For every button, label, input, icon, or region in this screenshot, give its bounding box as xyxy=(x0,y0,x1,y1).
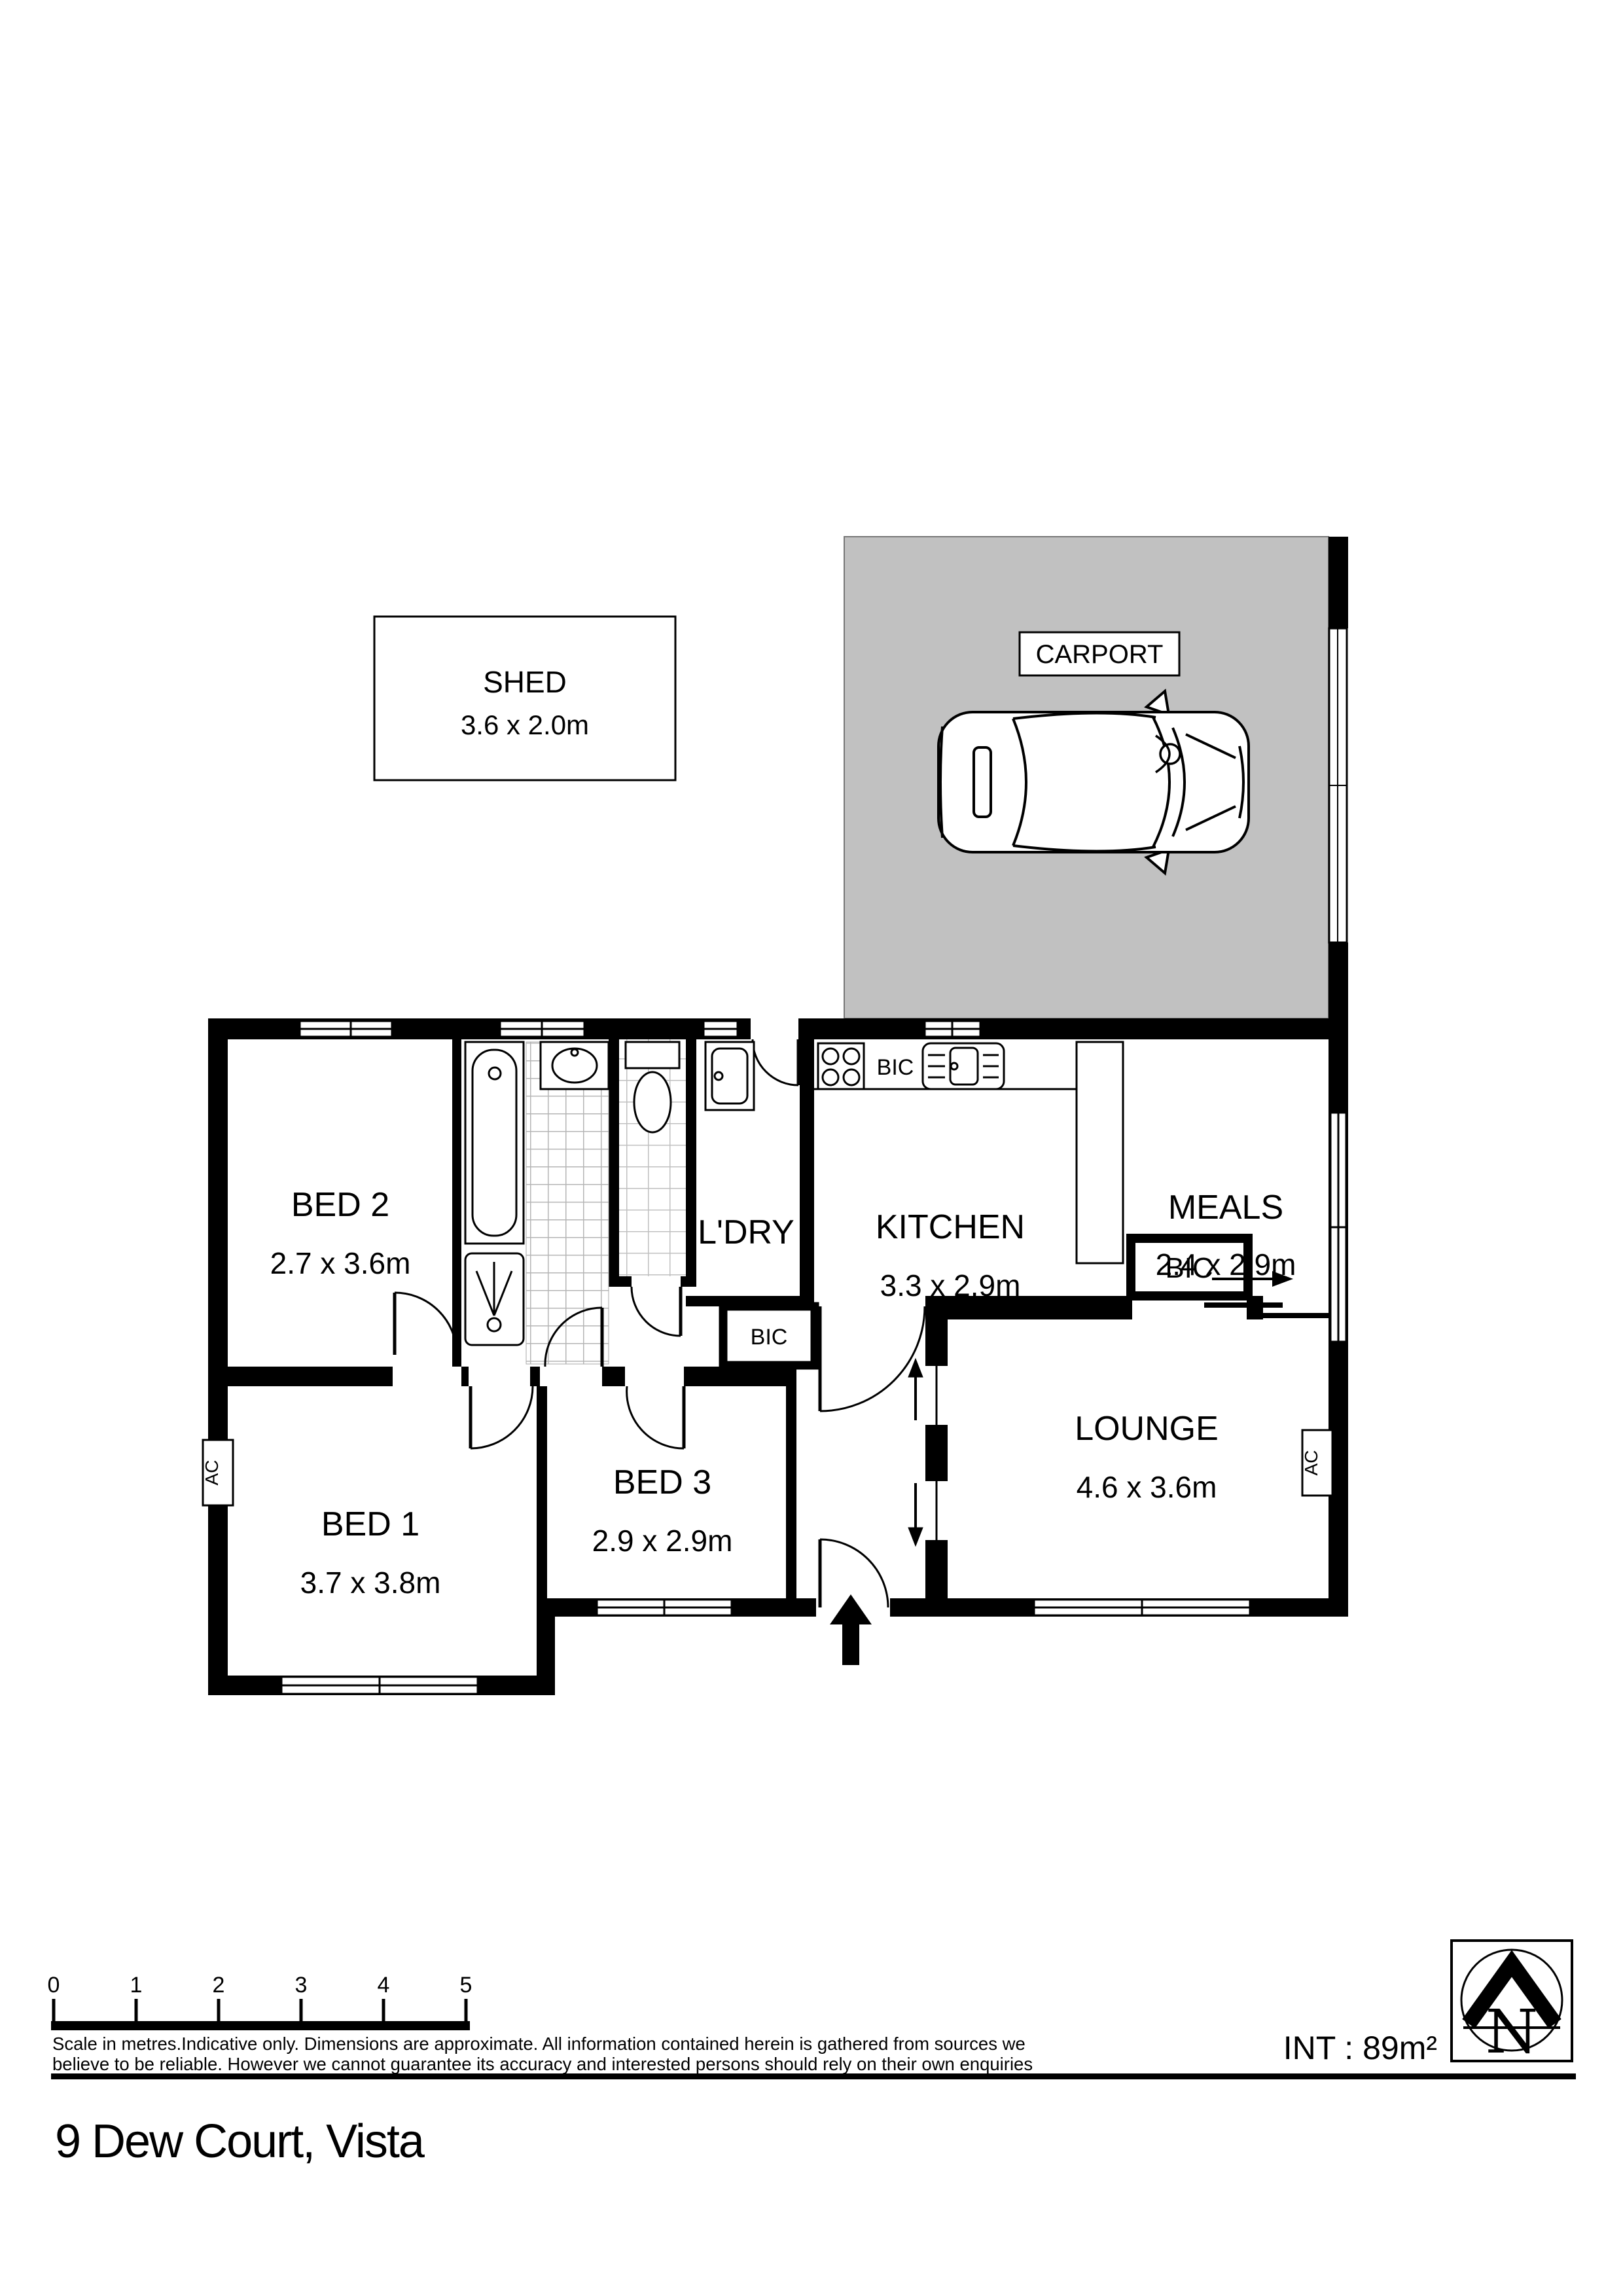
scale-tick-2: 2 xyxy=(213,1973,225,1998)
meals-window xyxy=(1330,1113,1346,1342)
bed1-window xyxy=(281,1677,478,1694)
scale-tick-0: 0 xyxy=(48,1973,60,1998)
shed-label: SHED xyxy=(483,665,567,699)
bic-kitchen-label: BIC xyxy=(877,1055,914,1080)
bathtub-icon xyxy=(465,1042,524,1244)
bathroom-tiles xyxy=(526,1042,609,1364)
separator-line xyxy=(51,2073,1576,2079)
carport: CARPORT xyxy=(844,537,1348,1021)
carport-label: CARPORT xyxy=(1036,640,1164,669)
bed3-window xyxy=(597,1600,732,1615)
disclaimer-line1: Scale in metres.Indicative only. Dimensi… xyxy=(52,2034,1026,2054)
ac-bed1-label: AC xyxy=(202,1460,222,1486)
bed3-label: BED 3 xyxy=(613,1463,711,1501)
bed2-door xyxy=(395,1293,457,1355)
ac-lounge-label: AC xyxy=(1301,1450,1321,1476)
carport-wall-upper xyxy=(1329,537,1348,628)
shed-dims: 3.6 x 2.0m xyxy=(461,709,589,740)
bic-hall: BIC xyxy=(723,1306,815,1365)
lounge-label: LOUNGE xyxy=(1075,1410,1219,1448)
floor-plan-svg: SHED 3.6 x 2.0m CARPORT xyxy=(0,0,1623,2296)
floorplan-page: SHED 3.6 x 2.0m CARPORT xyxy=(0,0,1623,2296)
counter-return xyxy=(1077,1042,1123,1263)
page-title: 9 Dew Court, Vista xyxy=(55,2115,425,2168)
ac-bed1: AC xyxy=(202,1440,233,1505)
bed2-label: BED 2 xyxy=(291,1186,389,1224)
meals-label: MEALS xyxy=(1168,1189,1283,1227)
wc-door xyxy=(632,1287,681,1336)
kitchen-dims: 3.3 x 2.9m xyxy=(880,1268,1021,1302)
bed2-dims: 2.7 x 3.6m xyxy=(270,1246,411,1280)
basin-icon xyxy=(541,1042,609,1089)
lounge-dims: 4.6 x 3.6m xyxy=(1077,1470,1217,1504)
bed1-dims: 3.7 x 3.8m xyxy=(300,1566,441,1600)
bed3-dims: 2.9 x 2.9m xyxy=(592,1524,733,1558)
back-door-gap xyxy=(751,1018,798,1039)
north-letter: N xyxy=(1486,1997,1539,2067)
laundry-back-door xyxy=(753,1039,798,1085)
lounge-window xyxy=(1034,1600,1250,1615)
bic-hall-label: BIC xyxy=(751,1325,788,1350)
arrow-down-icon xyxy=(908,1528,923,1546)
scale-tick-1: 1 xyxy=(130,1973,143,1998)
disclaimer-line2: believe to be reliable. However we canno… xyxy=(52,2054,1033,2074)
arrow-up-icon xyxy=(908,1359,923,1377)
bathroom-window xyxy=(500,1021,584,1037)
scale-tick-4: 4 xyxy=(378,1973,390,1998)
entry-arrow-icon xyxy=(830,1594,872,1665)
ac-lounge: AC xyxy=(1301,1430,1332,1496)
shed: SHED 3.6 x 2.0m xyxy=(374,617,675,780)
stove-icon xyxy=(818,1043,864,1089)
kitchen-window xyxy=(925,1021,980,1037)
shower-icon xyxy=(465,1253,524,1345)
car-icon xyxy=(938,691,1249,873)
hall-arrows xyxy=(908,1359,923,1546)
north-icon: N xyxy=(1452,1941,1572,2067)
ldry-window xyxy=(704,1021,738,1037)
entry-door xyxy=(820,1539,888,1607)
carport-screen xyxy=(1329,628,1347,942)
meals-dims: 2.4 x 2.9m xyxy=(1156,1247,1296,1282)
scale-tick-5: 5 xyxy=(460,1973,473,1998)
kitchen-label: KITCHEN xyxy=(876,1208,1025,1246)
bed1-door xyxy=(471,1386,533,1448)
bed1-label: BED 1 xyxy=(321,1505,419,1543)
int-area-label: INT : 89m² xyxy=(1283,2030,1437,2066)
laundry-trough-icon xyxy=(705,1042,754,1110)
scale-bar: 0 1 2 3 4 5 xyxy=(48,1973,473,2030)
kitchen-hall-door xyxy=(820,1306,925,1411)
bed3-door xyxy=(627,1386,684,1448)
bed2-window xyxy=(300,1021,392,1037)
kitchen-sink-icon xyxy=(923,1043,1004,1089)
ldry-label: L'DRY xyxy=(698,1213,794,1251)
scale-tick-3: 3 xyxy=(295,1973,308,1998)
